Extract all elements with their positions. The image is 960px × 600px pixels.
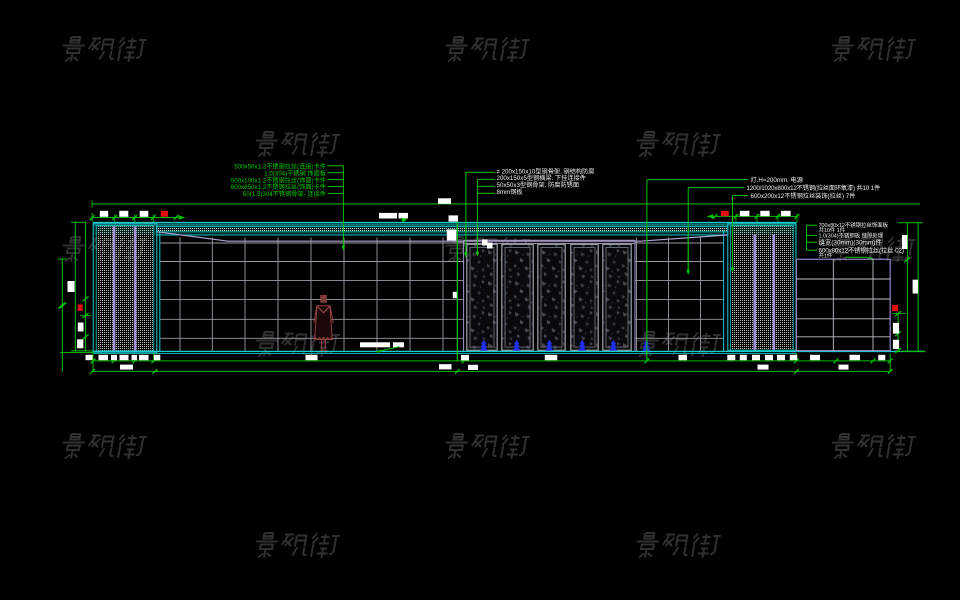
svg-text:缝宽(30mm)(30mm)件: 缝宽(30mm)(30mm)件	[819, 237, 883, 246]
svg-text:600x850x1.2不锈钢拉丝(饰面)卡件: 600x850x1.2不锈钢拉丝(饰面)卡件	[231, 183, 326, 191]
svg-text:1.0(304)不锈钢 饰面板: 1.0(304)不锈钢 饰面板	[264, 169, 326, 177]
svg-text:50x50x3型钢骨架. 防腐防锈面: 50x50x3型钢骨架. 防腐防锈面	[497, 181, 580, 189]
svg-text:500x50x1.2不锈钢拉丝(连接)卡件: 500x50x1.2不锈钢拉丝(连接)卡件	[234, 163, 326, 171]
svg-text:600x200x12不锈钢拉丝装饰(拉丝) 7件: 600x200x12不锈钢拉丝装饰(拉丝) 7件	[751, 192, 856, 200]
svg-text:1200/1020x800x12不锈钢(拉丝面环氧漆) 共1: 1200/1020x800x12不锈钢(拉丝面环氧漆) 共10 1件	[747, 184, 881, 192]
svg-text:≠ 200x150x10型钢骨架. 钢结构防腐: ≠ 200x150x10型钢骨架. 钢结构防腐	[497, 167, 595, 175]
svg-text:200x150x5型钢横梁. 下挂连接件: 200x150x5型钢横梁. 下挂连接件	[497, 174, 586, 182]
svg-text:8mm钢板: 8mm钢板	[497, 188, 523, 196]
svg-text:50(1.5)304不锈钢骨架- 连接件: 50(1.5)304不锈钢骨架- 连接件	[243, 190, 326, 198]
svg-text:灯.H=200mm. 电源: 灯.H=200mm. 电源	[751, 176, 803, 184]
svg-text:1.0(304)不锈钢板 缝隙处理: 1.0(304)不锈钢板 缝隙处理	[819, 232, 884, 240]
svg-text:共1件: 共1件	[819, 252, 833, 260]
svg-text:500x100x1.2不锈钢拉丝(饰面)卡件: 500x100x1.2不锈钢拉丝(饰面)卡件	[231, 176, 326, 184]
